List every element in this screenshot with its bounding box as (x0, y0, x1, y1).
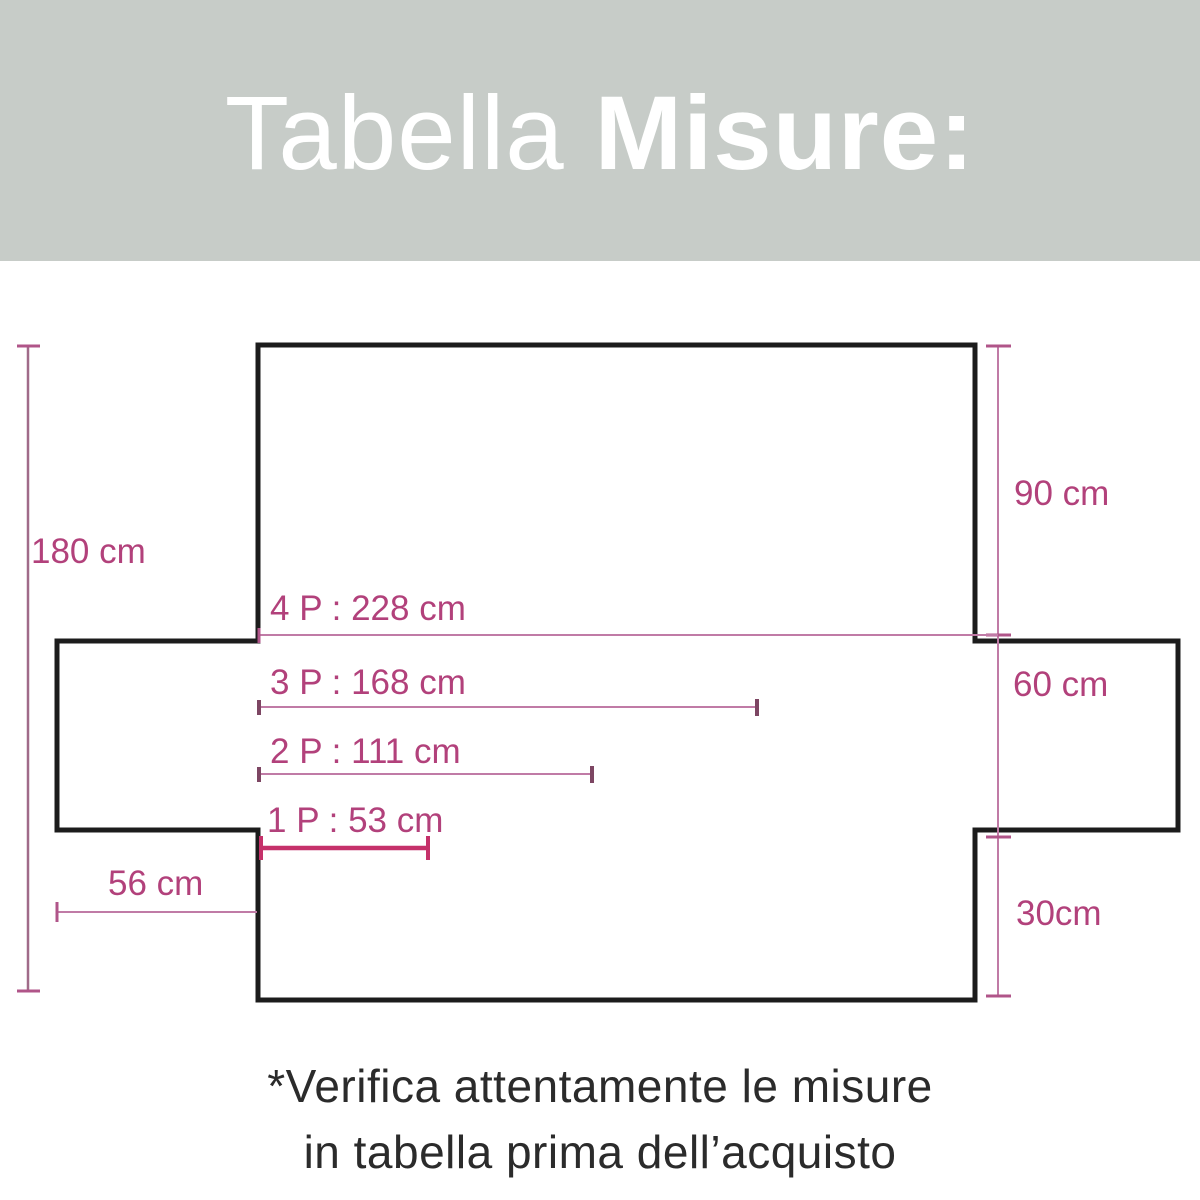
sofa-cover-measure-diagram: 180 cm 90 cm 60 cm 30cm 4 P : 228 cm 3 P… (0, 0, 1200, 1200)
note-line-1: *Verifica attentamente le misure (0, 1053, 1200, 1119)
arm-width-label: 56 cm (108, 864, 203, 903)
seats-3-label: 3 P : 168 cm (270, 663, 466, 702)
seats-4-label: 4 P : 228 cm (270, 589, 466, 628)
footer-note: *Verifica attentamente le misure in tabe… (0, 1053, 1200, 1185)
seats-2-label: 2 P : 111 cm (270, 732, 461, 771)
seats-1-label: 1 P : 53 cm (267, 801, 443, 840)
dimension-arm-width: 56 cm (57, 864, 257, 922)
total-height-label: 180 cm (31, 532, 146, 571)
dimension-1-seat: 1 P : 53 cm (261, 801, 443, 860)
cover-outline-shape (57, 345, 1178, 1000)
dimension-right-chain: 90 cm 60 cm 30cm (986, 346, 1109, 996)
dimension-4-seats: 4 P : 228 cm (259, 589, 998, 643)
seat-depth-label: 60 cm (1013, 665, 1108, 704)
front-drop-label: 30cm (1016, 894, 1102, 933)
size-chart-infographic: TabellaMisure: 180 cm 90 cm 60 cm 30cm (0, 0, 1200, 1200)
dimension-3-seats: 3 P : 168 cm (259, 663, 757, 716)
note-line-2: in tabella prima dell’acquisto (0, 1119, 1200, 1185)
back-height-label: 90 cm (1014, 474, 1109, 513)
dimension-2-seats: 2 P : 111 cm (259, 732, 592, 783)
